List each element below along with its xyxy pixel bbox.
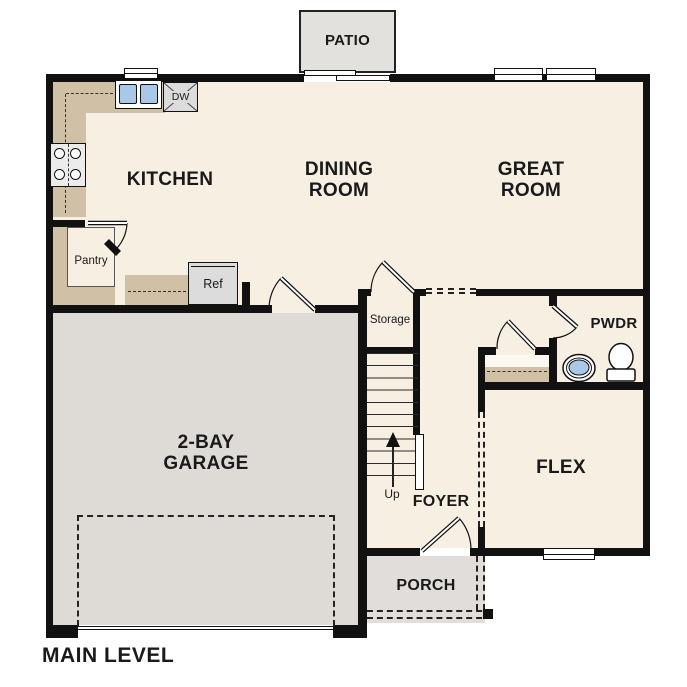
kitchen-label: KITCHEN [110, 169, 230, 190]
stair-up-arrow [386, 432, 400, 447]
opening-flex-1 [478, 412, 480, 527]
dishwasher-label: DW [171, 91, 191, 103]
garage-door-dashed-zone [77, 515, 335, 626]
garage-door [78, 626, 333, 630]
dining-room-label: DINING ROOM [289, 159, 389, 202]
wall-ref-stub [242, 282, 250, 305]
stair-stringer [415, 434, 424, 490]
patio-label: PATIO [325, 33, 370, 50]
opening-flex-2 [483, 412, 485, 527]
floor-plan: PATIO [0, 0, 687, 687]
refrigerator-label: Ref [203, 277, 222, 291]
counter-by-ref [125, 275, 188, 305]
porch-dash-bottom-2 [367, 617, 492, 619]
sink-basin [119, 84, 137, 104]
kitchen-window [124, 68, 158, 79]
wall-right [643, 74, 650, 556]
foyer-label: FOYER [404, 493, 478, 511]
burner [54, 148, 65, 159]
porch-post [483, 609, 493, 619]
burner [70, 169, 81, 180]
powder-room-label: PWDR [585, 316, 643, 333]
burner [54, 169, 65, 180]
wall-flex-stub [478, 527, 485, 548]
great-room-window-2 [546, 68, 596, 81]
flex-label: FLEX [521, 457, 601, 478]
wall-closet-left [478, 347, 485, 412]
refrigerator-top-line [191, 266, 235, 267]
porch-dash-bottom-1 [367, 610, 492, 612]
wall-pantry-top [46, 220, 85, 227]
up-label: Up [377, 487, 407, 501]
counter-dash-ref [128, 291, 186, 292]
porch-label: PORCH [367, 577, 485, 595]
burner [70, 148, 81, 159]
storage-label: Storage [366, 314, 414, 326]
wall-garage-bottom-a [46, 625, 78, 638]
wall-kitchen-garage-a [46, 305, 272, 313]
wall-storage-top [358, 289, 371, 296]
vanity-counter [485, 367, 549, 383]
pantry-label: Pantry [67, 255, 115, 267]
great-room-label: GREAT ROOM [481, 159, 581, 202]
patio-area: PATIO [299, 10, 396, 73]
wall-garage-bottom-b [333, 625, 367, 638]
patio-slider-panel-2 [336, 75, 390, 81]
vanity-dash [487, 371, 547, 372]
opening-dining-hall-2 [426, 292, 476, 294]
sink-basin [140, 84, 158, 104]
wall-garage-right [358, 289, 367, 638]
great-room-window-1 [494, 68, 543, 81]
wall-south-a [358, 548, 420, 556]
stove-centerline [68, 144, 69, 186]
opening-dining-hall-1 [426, 288, 476, 290]
refrigerator: Ref [188, 262, 238, 305]
stove [50, 143, 86, 187]
garage-label: 2-BAY GARAGE [146, 432, 266, 475]
vanity-splash [485, 355, 549, 367]
dishwasher: DW [163, 82, 198, 112]
kitchen-sink [115, 80, 162, 109]
wall-mid-right [476, 289, 643, 296]
plan-title: MAIN LEVEL [42, 644, 242, 668]
counter-dash-top [66, 93, 113, 94]
flex-window [543, 548, 595, 560]
counter-pantry-bottom [53, 287, 115, 305]
wall-pwdr-left-a [549, 294, 557, 306]
wall-pwdr-flex [478, 382, 643, 390]
